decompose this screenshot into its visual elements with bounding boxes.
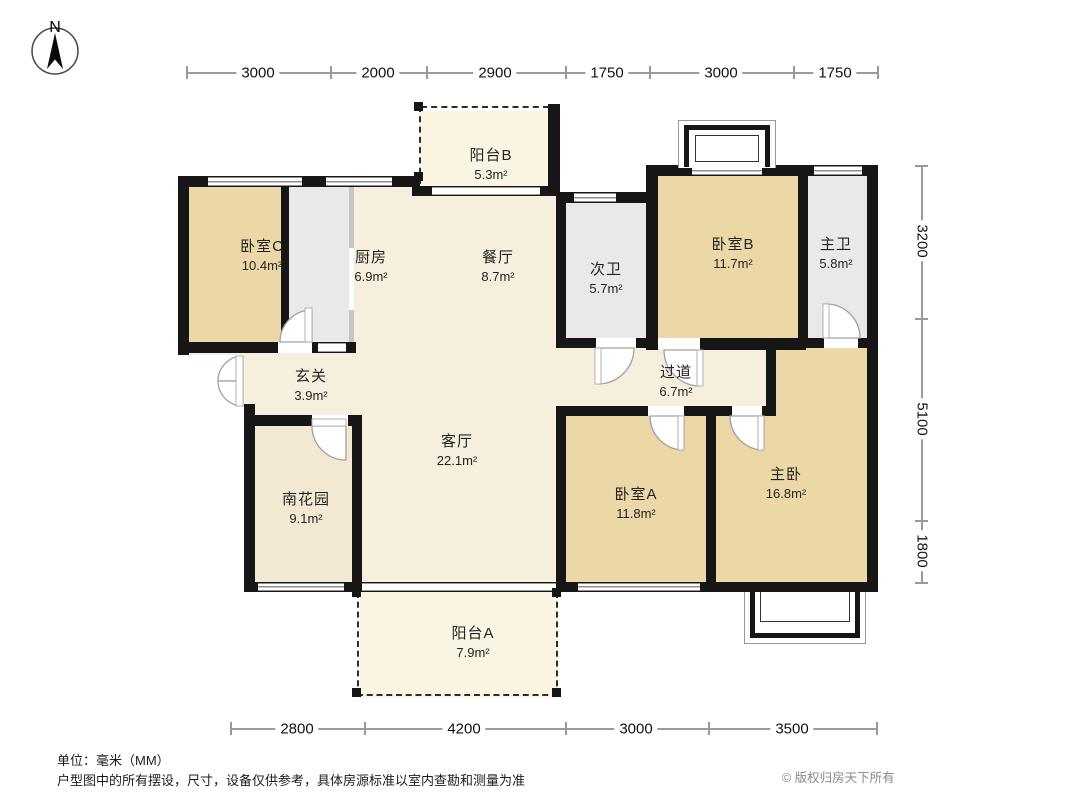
room-area: 22.1m² [437, 453, 477, 468]
door-opening [648, 406, 684, 416]
dimension-tick [649, 66, 651, 79]
room-label-kitchen: 厨房 6.9m² [354, 246, 387, 284]
room-area: 11.8m² [614, 506, 657, 521]
dimension-value: 1800 [914, 530, 931, 571]
room-label-balcony-a: 阳台A 7.9m² [451, 622, 494, 660]
room-area: 5.8m² [819, 256, 852, 271]
dimension-value: 1750 [813, 65, 856, 82]
pillar-marker [414, 102, 423, 111]
room-name: 卧室B [711, 233, 754, 254]
wall-segment [556, 406, 566, 592]
room-label-master-bedroom: 主卧 16.8m² [766, 463, 806, 501]
dimension-tick [877, 66, 879, 79]
wall-segment [646, 165, 658, 348]
room-area: 9.1m² [282, 511, 330, 526]
dimension-value: 3200 [914, 220, 931, 261]
room-label-living: 客厅 22.1m² [437, 430, 477, 468]
dimension-tick [915, 520, 928, 522]
dimension-tick [426, 66, 428, 79]
room-label-foyer: 玄关 3.9m² [294, 365, 327, 403]
balcony-dashed-edge [357, 592, 359, 696]
room-name: 厨房 [354, 246, 387, 267]
sliding-door [362, 583, 556, 591]
dimension-tick [915, 582, 928, 584]
dimension-value: 3500 [770, 721, 813, 738]
door-opening [312, 415, 348, 426]
wall-segment [244, 404, 255, 592]
wall-segment [556, 196, 566, 348]
pillar-marker [352, 588, 361, 597]
room-name: 主卫 [819, 233, 852, 254]
window [574, 193, 616, 202]
room-name: 主卧 [766, 463, 806, 484]
room-area-kitchen [289, 187, 352, 343]
dimension-value: 3000 [614, 721, 657, 738]
dimension-tick [793, 66, 795, 79]
room-area: 8.7m² [481, 269, 514, 284]
wall-segment [798, 176, 808, 348]
wall-opening [349, 248, 354, 310]
dimension-value: 1750 [585, 65, 628, 82]
dimension-tick [915, 318, 928, 320]
window [208, 177, 302, 186]
door-opening [596, 338, 636, 348]
dimension-tick [565, 722, 567, 735]
dimension-tick [565, 66, 567, 79]
door-opening [824, 338, 858, 348]
exterior-patch [556, 176, 658, 192]
door-opening [278, 342, 312, 353]
wall-segment [178, 176, 189, 355]
dimension-tick [915, 165, 928, 167]
balcony-dashed-edge [421, 106, 549, 108]
door-opening [732, 406, 762, 416]
bay-window-inner [760, 592, 850, 622]
room-area: 11.7m² [711, 256, 754, 271]
room-label-bedroom-b: 卧室B 11.7m² [711, 233, 754, 271]
dimension-tick [230, 722, 232, 735]
room-label-bedroom-a: 卧室A 11.8m² [614, 483, 657, 521]
room-name: 卧室A [614, 483, 657, 504]
wall-segment [867, 165, 878, 592]
room-area: 16.8m² [766, 486, 806, 501]
dimension-tick [364, 722, 366, 735]
room-name: 次卫 [589, 258, 622, 279]
room-name: 卧室C [240, 235, 284, 256]
dimension-value: 3000 [699, 65, 742, 82]
wall-segment [352, 415, 362, 592]
bay-window-inner [695, 135, 759, 162]
room-name: 餐厅 [481, 246, 514, 267]
room-area: 5.3m² [469, 167, 512, 182]
sliding-door [318, 343, 346, 352]
compass: N [26, 14, 86, 78]
balcony-dashed-edge [357, 694, 558, 696]
room-name: 南花园 [282, 488, 330, 509]
pillar-marker [414, 172, 423, 181]
dimension-line [186, 72, 877, 74]
dimension-value: 2800 [275, 721, 318, 738]
room-label-balcony-b: 阳台B 5.3m² [469, 144, 512, 182]
room-name: 玄关 [294, 365, 327, 386]
room-name: 客厅 [437, 430, 477, 451]
dimension-value: 2000 [356, 65, 399, 82]
room-label-corridor: 过道 6.7m² [659, 361, 692, 399]
dimension-value: 3000 [236, 65, 279, 82]
window [578, 583, 700, 591]
room-area: 6.7m² [659, 384, 692, 399]
dimension-tick [708, 722, 710, 735]
dimension-value: 4200 [442, 721, 485, 738]
pillar-marker [552, 588, 561, 597]
room-area: 5.7m² [589, 281, 622, 296]
room-label-dining: 餐厅 8.7m² [481, 246, 514, 284]
room-label-bath-2: 次卫 5.7m² [589, 258, 622, 296]
dimension-value: 2900 [473, 65, 516, 82]
dimension-tick [876, 722, 878, 735]
dimension-value: 5100 [914, 398, 931, 439]
wall-segment [762, 406, 776, 416]
exterior-patch [178, 355, 244, 592]
disclaimer-note: 户型图中的所有摆设，尺寸，设备仅供参考，具体房源标准以室内查勘和测量为准 [57, 770, 525, 789]
room-area-master-vestibule [776, 348, 868, 408]
wall-segment [548, 104, 560, 196]
unit-note: 单位：毫米（MM） [57, 750, 170, 769]
door-opening [658, 338, 700, 350]
copyright-note: © 版权归房天下所有 [782, 767, 895, 786]
pillar-marker [352, 688, 361, 697]
pillar-marker [552, 688, 561, 697]
balcony-dashed-edge [556, 592, 558, 696]
window [814, 166, 862, 175]
room-label-bedroom-c: 卧室C 10.4m² [240, 235, 284, 273]
room-name: 过道 [659, 361, 692, 382]
floorplan-canvas: N 3000 2000 2900 1750 3000 1750 3200 510… [0, 0, 1066, 800]
dimension-tick [186, 66, 188, 79]
window [258, 583, 344, 591]
room-name: 阳台A [451, 622, 494, 643]
room-area: 7.9m² [451, 645, 494, 660]
room-name: 阳台B [469, 144, 512, 165]
room-area: 6.9m² [354, 269, 387, 284]
room-area: 10.4m² [240, 258, 284, 273]
wall-segment [556, 406, 648, 416]
room-area: 3.9m² [294, 388, 327, 403]
room-label-bath-master: 主卫 5.8m² [819, 233, 852, 271]
room-label-south-garden: 南花园 9.1m² [282, 488, 330, 526]
window [326, 177, 392, 186]
dimension-tick [330, 66, 332, 79]
sliding-door [432, 187, 540, 195]
wall-segment [706, 406, 716, 592]
